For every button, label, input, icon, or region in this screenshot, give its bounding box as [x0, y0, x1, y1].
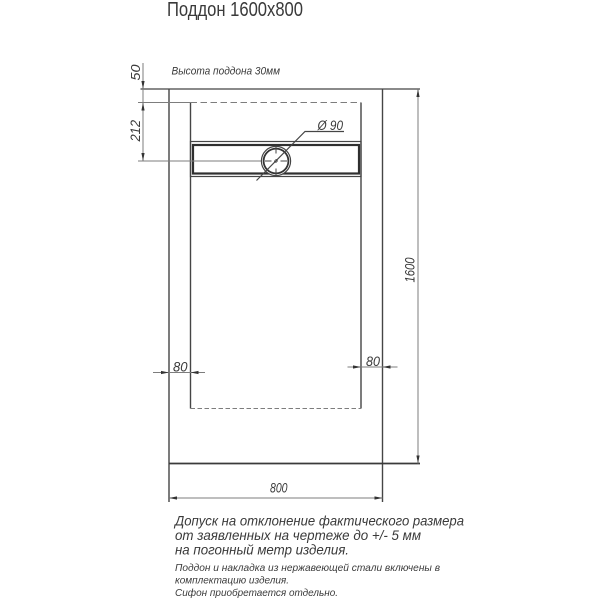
svg-text:на погонный метр изделия.: на погонный метр изделия.	[175, 543, 349, 558]
svg-text:Поддон 1600x800: Поддон 1600x800	[167, 0, 303, 21]
svg-text:800: 800	[270, 480, 288, 495]
svg-text:1600: 1600	[403, 257, 418, 282]
svg-text:80: 80	[173, 360, 188, 375]
svg-text:Допуск на отклонение фактическ: Допуск на отклонение фактического размер…	[173, 514, 464, 529]
svg-text:Ø 90: Ø 90	[317, 118, 344, 133]
svg-text:Сифон приобретается отдельно.: Сифон приобретается отдельно.	[175, 587, 338, 599]
svg-text:комплектацию изделия.: комплектацию изделия.	[175, 576, 289, 587]
svg-text:Поддон и накладка из нержавеющ: Поддон и накладка из нержавеющей стали в…	[175, 563, 441, 574]
svg-text:50: 50	[128, 64, 143, 81]
svg-text:80: 80	[366, 354, 380, 369]
svg-text:Высота поддона 30мм: Высота поддона 30мм	[172, 66, 281, 78]
svg-text:от заявленных на чертеже до +/: от заявленных на чертеже до +/- 5 мм	[175, 528, 422, 543]
svg-text:212: 212	[127, 120, 143, 143]
